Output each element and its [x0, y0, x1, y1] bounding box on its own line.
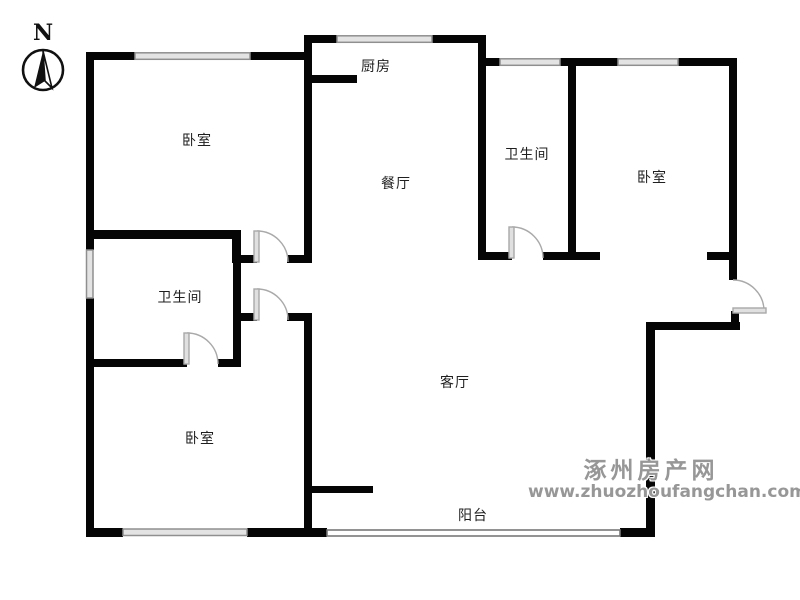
wall-corridor-top-b	[287, 255, 312, 263]
window-bedroom-top-left	[135, 53, 250, 60]
room-label-bedroom-bottom-left: 卧室	[185, 428, 215, 448]
wall-top-right-a	[486, 58, 500, 66]
wall-foyer-stub	[707, 252, 733, 260]
wall-kitchen-top-b	[432, 35, 486, 43]
wall-top-left-b	[250, 52, 308, 60]
compass	[23, 50, 63, 90]
floorplan-drawing	[0, 0, 800, 600]
window-bathroom-middle	[500, 59, 560, 66]
room-label-living: 客厅	[440, 372, 470, 392]
wall-kitchen-stub	[304, 75, 357, 83]
wall-top-right-b	[560, 58, 618, 66]
wall-bath-left-bottom-a	[86, 359, 187, 367]
door-leaf	[254, 231, 259, 262]
wall-balcony-stub	[307, 486, 373, 493]
wall-outer-right	[729, 58, 737, 280]
watermark-site-url: www.zhuozhoufangchan.com	[528, 484, 774, 502]
wall-bath-mid-bottom-a	[478, 252, 512, 260]
door-arc	[257, 289, 288, 320]
wall-bedroom-bl-right	[304, 315, 312, 537]
door-arc	[512, 227, 543, 258]
door-bathroom-middle	[509, 227, 543, 258]
doors	[184, 227, 766, 364]
watermark: 涿州房产网 www.zhuozhoufangchan.com	[528, 459, 774, 502]
door-bathroom-left	[184, 333, 218, 364]
balcony-rail	[327, 530, 620, 536]
compass-north-label: N	[33, 20, 53, 46]
wall-outer-left-upper	[86, 52, 94, 250]
door-entry	[733, 280, 766, 313]
floorplan-canvas: N 卧室 厨房 餐厅 卫生间 卧室 卫生间 卧室 客厅 阳台 涿州房产网 www…	[0, 0, 800, 600]
wall-bottom-left-b	[247, 528, 327, 537]
watermark-site-name: 涿州房产网	[528, 459, 774, 483]
wall-bedroom-tl-bottom	[86, 230, 233, 239]
wall-bath-left-right	[233, 232, 241, 367]
wall-bath-left-bottom-b	[218, 359, 241, 367]
room-label-bedroom-top-left: 卧室	[182, 130, 212, 150]
wall-foyer-bottom	[648, 322, 740, 330]
door-leaf	[509, 227, 514, 258]
door-arc	[187, 333, 218, 364]
wall-bottom-left-a	[86, 528, 123, 537]
door-leaf	[184, 333, 189, 364]
door-leaf	[733, 308, 766, 313]
wall-top-right-c	[678, 58, 737, 66]
window-left-bathroom	[87, 250, 94, 298]
door-bedroom-top-left	[254, 231, 288, 262]
wall-bath-bed-divider	[568, 66, 576, 256]
wall-kitchen-left	[304, 35, 312, 263]
room-label-balcony: 阳台	[458, 505, 488, 525]
window-kitchen	[337, 36, 432, 43]
wall-mid-vertical	[478, 35, 486, 260]
wall-top-left-a	[86, 52, 135, 60]
wall-bath-mid-bottom-b	[543, 252, 600, 260]
door-arc	[257, 231, 288, 262]
window-bedroom-bottom-left	[123, 529, 247, 536]
room-label-bathroom-left: 卫生间	[158, 287, 203, 307]
door-arc	[733, 280, 764, 311]
window-bedroom-right	[618, 59, 678, 66]
wall-outer-left-lower	[86, 298, 94, 537]
room-label-dining: 餐厅	[381, 173, 411, 193]
compass-needle-right	[43, 51, 52, 88]
wall-kitchen-top-a	[304, 35, 337, 43]
wall-corridor-bottom-b	[287, 313, 312, 321]
door-bedroom-bottom-left	[254, 289, 288, 320]
wall-bottom-right	[620, 528, 655, 537]
door-leaf	[254, 289, 259, 320]
room-label-bedroom-right: 卧室	[637, 167, 667, 187]
room-label-kitchen: 厨房	[361, 56, 391, 76]
room-label-bathroom-middle: 卫生间	[505, 144, 550, 164]
